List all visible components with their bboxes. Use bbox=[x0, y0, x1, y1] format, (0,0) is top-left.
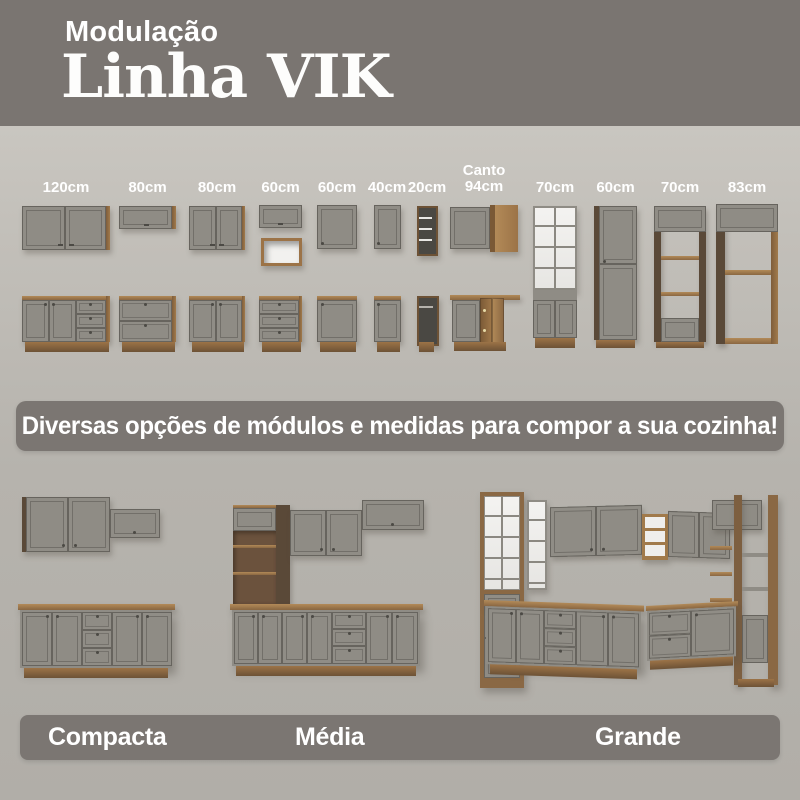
module-base-canto bbox=[450, 295, 520, 352]
grande-open-tower bbox=[734, 495, 778, 691]
media-wall-cabinet-b bbox=[362, 500, 424, 530]
module-tall-60cm bbox=[594, 206, 637, 340]
module-wall-120cm bbox=[22, 206, 110, 250]
kitchen-label-grande: Grande bbox=[595, 715, 681, 760]
module-wall-60cm-flip bbox=[259, 205, 302, 228]
module-label-80cm-b: 80cm bbox=[189, 180, 245, 196]
module-label-120cm: 120cm bbox=[22, 180, 110, 196]
kitchen-label-compacta: Compacta bbox=[48, 715, 166, 760]
module-label-40cm: 40cm bbox=[364, 180, 410, 196]
module-tall-70cm-glass bbox=[533, 206, 577, 348]
module-wall-20cm-shelf bbox=[417, 206, 438, 256]
module-wall-40cm bbox=[374, 205, 401, 249]
module-base-120cm bbox=[22, 296, 110, 342]
module-label-60cm-c: 60cm bbox=[594, 180, 637, 196]
module-label-70cm-a: 70cm bbox=[533, 180, 577, 196]
module-tall-70cm-open bbox=[654, 206, 706, 348]
module-wall-80cm bbox=[189, 206, 245, 250]
compacta-wall-cabinet bbox=[22, 497, 110, 552]
grande-mid-shelves bbox=[710, 536, 732, 606]
grande-wall-run-left bbox=[550, 505, 642, 557]
module-label-60cm-b: 60cm bbox=[315, 180, 359, 196]
kitchen-sizes-bar: Compacta Média Grande bbox=[20, 715, 780, 760]
grande-base-run-right bbox=[646, 601, 738, 672]
grande-base-run-left bbox=[484, 600, 644, 684]
module-wall-60cm bbox=[317, 205, 357, 249]
module-base-80cm-doors bbox=[189, 296, 245, 342]
module-label-70cm-b: 70cm bbox=[654, 180, 706, 196]
grande-glass-column bbox=[527, 500, 547, 590]
page-title: Linha VIK bbox=[61, 42, 391, 112]
media-base-run bbox=[230, 604, 423, 676]
module-label-canto-94cm: Canto 94cm bbox=[450, 163, 518, 195]
module-wall-80cm-flip bbox=[119, 206, 176, 229]
module-label-80cm-a: 80cm bbox=[119, 180, 176, 196]
module-base-40cm bbox=[374, 296, 401, 342]
module-base-20cm-niche bbox=[417, 296, 439, 346]
compacta-flip-cabinet bbox=[110, 509, 160, 538]
module-label-20cm: 20cm bbox=[406, 180, 448, 196]
module-label-83cm: 83cm bbox=[716, 180, 778, 196]
header: Modulação Linha VIK bbox=[0, 0, 800, 126]
media-wall-cabinet-a bbox=[290, 510, 362, 556]
module-base-60cm-door bbox=[317, 296, 357, 342]
kitchen-label-media: Média bbox=[295, 715, 364, 760]
module-base-60cm-drawers bbox=[259, 296, 302, 342]
banner: Diversas opções de módulos e medidas par… bbox=[16, 401, 784, 451]
promo-graphic: Modulação Linha VIK 120cm 80cm 80cm 60cm… bbox=[0, 0, 800, 800]
media-tower bbox=[233, 505, 290, 604]
module-wall-canto bbox=[450, 205, 518, 251]
grande-corner-shelves bbox=[642, 514, 668, 560]
banner-text: Diversas opções de módulos e medidas par… bbox=[22, 412, 778, 441]
module-tall-83cm-open bbox=[716, 204, 778, 350]
compacta-base-run bbox=[18, 604, 175, 678]
module-wall-60cm-niche bbox=[261, 238, 302, 266]
module-base-80cm-drawers bbox=[119, 296, 176, 342]
module-label-60cm-a: 60cm bbox=[259, 180, 302, 196]
